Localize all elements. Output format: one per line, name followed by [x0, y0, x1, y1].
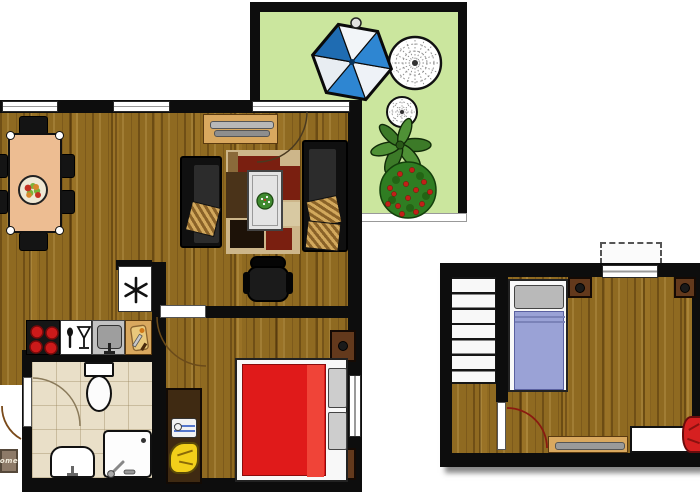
table-corner-knob	[55, 226, 64, 235]
bed-blanket-red	[242, 364, 326, 476]
table-corner-knob	[6, 131, 15, 140]
table-corner-knob	[55, 131, 64, 140]
stove	[26, 320, 60, 355]
office-chair-arm	[243, 272, 250, 294]
single-bed	[508, 279, 568, 392]
washbasin	[50, 446, 95, 478]
annex-wall-bottom	[440, 453, 700, 467]
sofa-pillow	[305, 220, 342, 251]
bed-blanket-blue	[514, 311, 564, 390]
sewing-machine-wheel	[174, 423, 182, 431]
bed-pillow	[328, 368, 347, 408]
cutlery-icon	[61, 321, 93, 356]
rug-patch	[228, 152, 238, 172]
floor-plan-canvas: ome	[0, 0, 700, 500]
double-bed	[235, 358, 348, 482]
radiator-bar	[214, 130, 270, 137]
rug-patch	[266, 228, 292, 250]
coffee-table-plant	[256, 192, 274, 210]
staircase	[450, 277, 497, 384]
dishwasher	[60, 320, 92, 355]
cutting-board-icon	[126, 321, 153, 356]
annex-wall-top	[440, 263, 700, 277]
armchair-fold	[688, 423, 699, 431]
toilet-bowl	[86, 375, 112, 412]
table-corner-knob	[6, 226, 15, 235]
annex-door	[497, 402, 506, 450]
bed-pillow	[514, 285, 564, 309]
annex-wall-interior	[496, 277, 508, 402]
yellow-chair	[169, 442, 199, 474]
window-top-2	[113, 101, 170, 112]
terrace-wall-top	[250, 2, 467, 12]
dining-chair	[0, 154, 8, 178]
faucet-icon	[104, 351, 115, 354]
kitchen-sink	[92, 320, 125, 355]
radiator-bar	[210, 121, 274, 129]
apartment	[0, 100, 362, 492]
doormat: ome	[0, 449, 18, 473]
bedroom-desk	[166, 388, 202, 484]
basin-faucet-icon	[67, 473, 78, 476]
blanket-fold-line	[515, 316, 565, 318]
blanket-fold-line	[515, 321, 565, 323]
office-chair-seat	[247, 266, 289, 302]
nightstand-knob	[680, 283, 690, 293]
shower-drain	[141, 438, 146, 443]
window-top-1	[2, 101, 58, 112]
office-chair	[243, 256, 293, 306]
rug-patch	[226, 172, 248, 218]
bed-pillow	[328, 412, 347, 450]
asterisk-snowflake-icon	[119, 267, 153, 313]
bedroom-window	[349, 375, 361, 437]
bench-desk	[548, 436, 628, 453]
bathroom-door	[23, 377, 32, 427]
outside-area	[0, 385, 22, 500]
annex-wall-left	[440, 263, 452, 467]
terrace-glass-door	[252, 101, 350, 112]
dining-chair	[0, 190, 8, 214]
terrace-wall-right	[458, 2, 467, 222]
nightstand-knob	[338, 341, 348, 351]
annex-nightstand-left	[568, 277, 592, 298]
cutting-board-counter	[125, 320, 152, 355]
fruit-bowl	[18, 175, 48, 205]
refrigerator-freezer	[118, 266, 152, 312]
shower	[103, 430, 152, 478]
doormat-text: ome	[0, 457, 18, 465]
red-armchair	[682, 416, 700, 453]
nightstand-knob	[575, 283, 585, 293]
dining-chair	[19, 232, 48, 251]
dining-chair	[60, 154, 75, 178]
bench-rod	[555, 442, 625, 450]
chair-fold-line	[177, 450, 193, 457]
dining-chair	[60, 190, 75, 214]
terrace-wall-left	[250, 2, 260, 100]
rug-patch	[282, 202, 300, 226]
flower-bush-icon	[376, 160, 440, 222]
annex-window-sill	[602, 265, 658, 278]
annex-room	[440, 263, 700, 467]
shower-sprayer-icon	[107, 458, 137, 478]
office-chair-arm	[286, 272, 293, 294]
bedroom-door	[160, 305, 206, 318]
wall-kitchen-stub	[152, 262, 166, 492]
sideboard	[203, 114, 278, 144]
armchair-fold	[687, 438, 700, 444]
annex-nightstand-right	[674, 277, 696, 298]
chair-fold-line	[179, 461, 193, 466]
sewing-machine	[171, 418, 197, 438]
bed-blanket-fold	[307, 365, 324, 477]
